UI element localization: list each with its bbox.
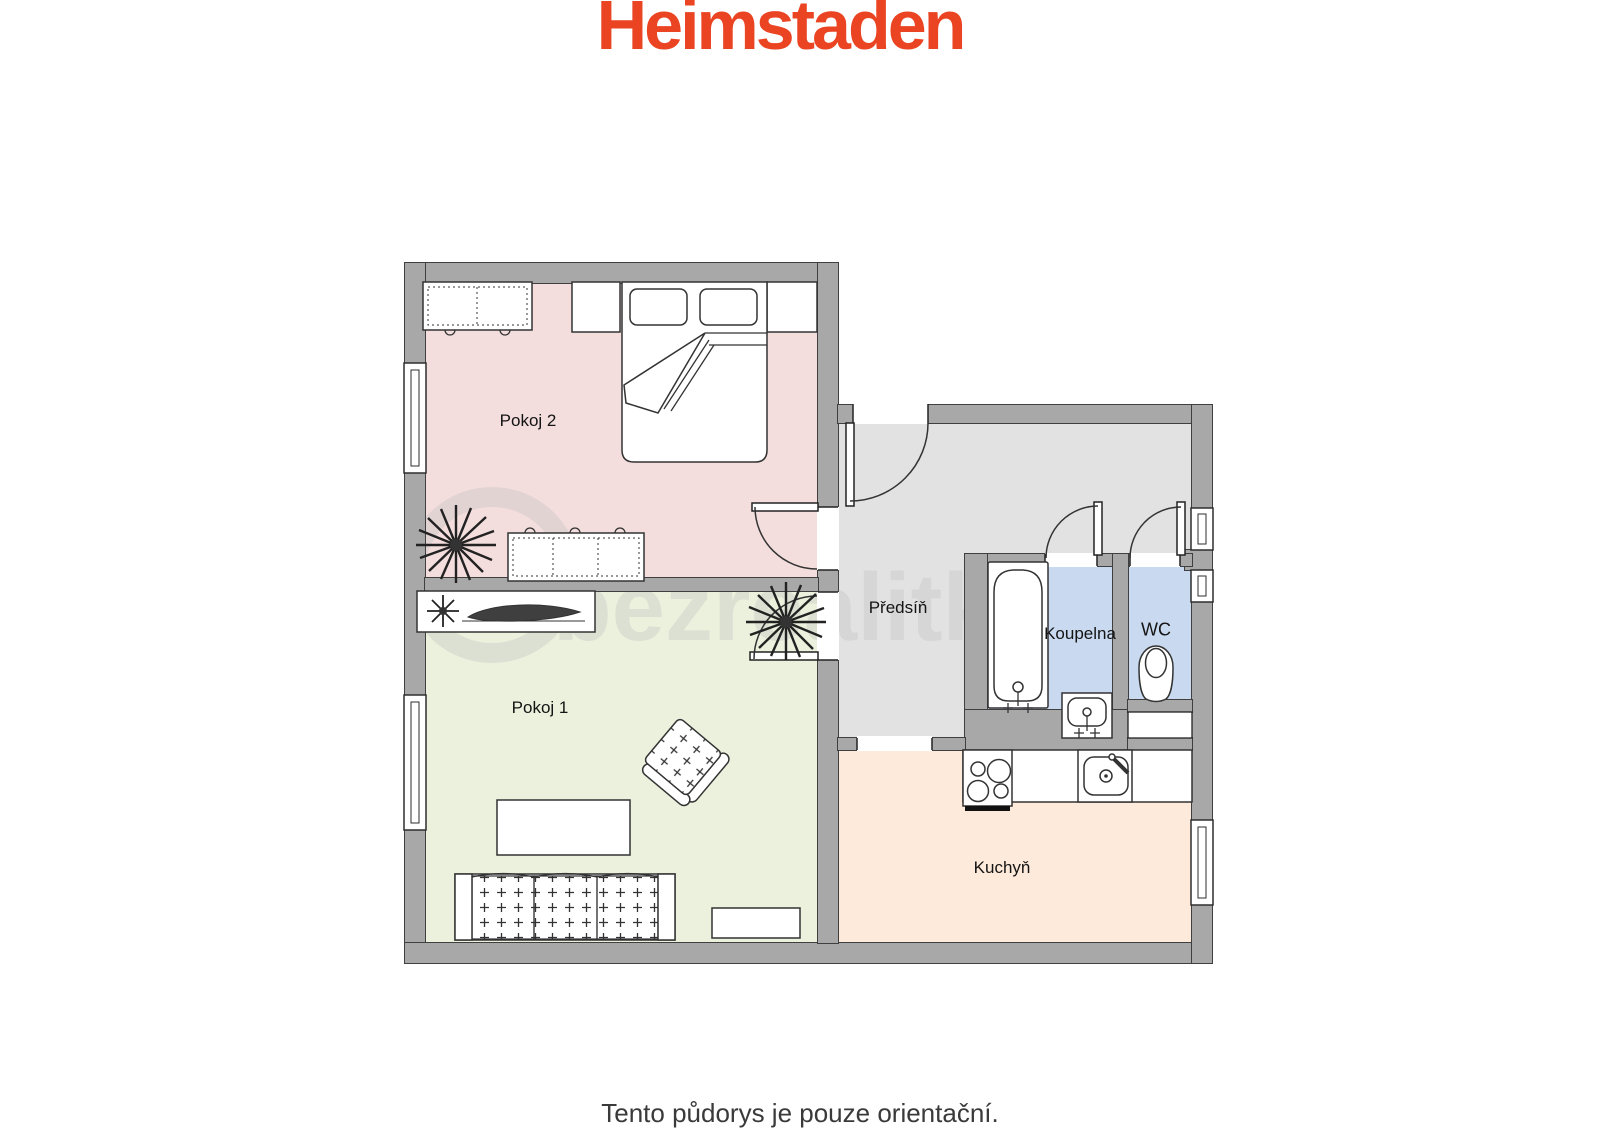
room-label-koupelna: Koupelna bbox=[1044, 624, 1116, 644]
armchair bbox=[637, 716, 731, 811]
wc-door bbox=[1130, 502, 1185, 567]
entrance-door bbox=[846, 403, 928, 506]
double-bed bbox=[622, 282, 767, 462]
room-label-wc: WC bbox=[1141, 620, 1171, 641]
kitchen-opening bbox=[857, 736, 932, 751]
toilet bbox=[1139, 646, 1173, 702]
plant-icon bbox=[746, 582, 826, 660]
room-label-pokoj1: Pokoj 1 bbox=[512, 698, 569, 718]
bathtub bbox=[988, 562, 1048, 713]
coffee-table bbox=[497, 800, 630, 855]
room-label-pokoj2: Pokoj 2 bbox=[500, 411, 557, 431]
sideboard bbox=[508, 528, 644, 581]
wc-niche bbox=[1128, 712, 1192, 738]
sofa bbox=[455, 874, 675, 941]
kitchen-sink bbox=[1078, 750, 1132, 802]
dresser-cabinet bbox=[423, 282, 532, 335]
plant-icon bbox=[416, 505, 496, 583]
disclaimer-note: Tento půdorys je pouze orientační. bbox=[0, 1098, 1600, 1129]
stove bbox=[963, 750, 1012, 811]
room-label-kuchyn: Kuchyň bbox=[974, 858, 1031, 878]
pokoj2-door bbox=[752, 503, 839, 570]
floorplan-page: Heimstaden bezrealitky bbox=[0, 0, 1600, 1135]
koupelna-door bbox=[1045, 502, 1102, 567]
tv-bench bbox=[712, 908, 800, 938]
washbasin bbox=[1062, 693, 1112, 738]
room-label-predsin: Předsíň bbox=[869, 598, 928, 618]
